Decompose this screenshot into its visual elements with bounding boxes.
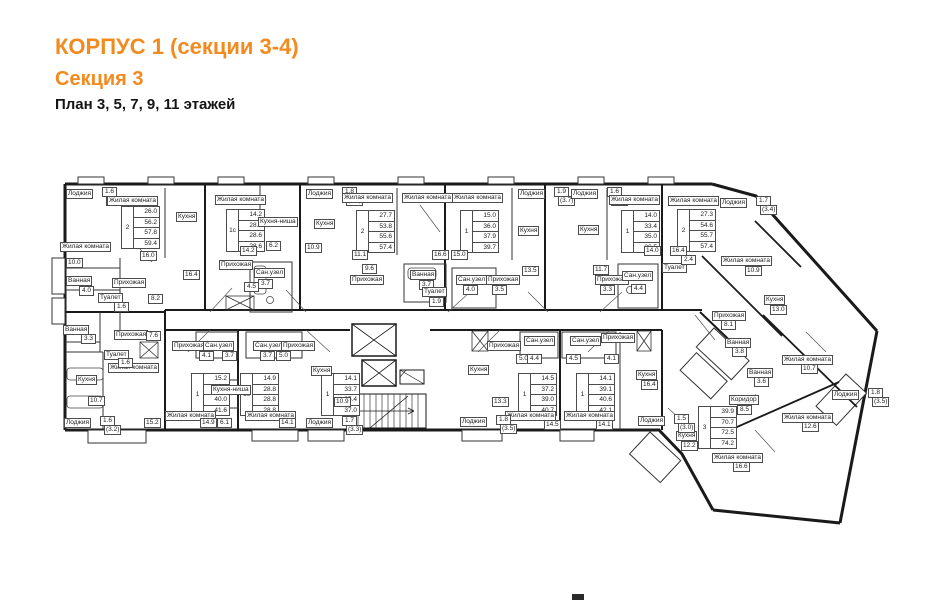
apartment-table: 339.970.772.574.2 [698, 406, 737, 449]
apartment-area-value: 39.9 [711, 407, 736, 418]
room-label: Лоджия [66, 189, 93, 199]
room-label: Кухня-ниша [211, 385, 251, 395]
room-area: 16.6 [733, 462, 750, 472]
room-label: Лоджия [306, 418, 333, 428]
room-area: (3.4) [760, 205, 777, 215]
title-block: КОРПУС 1 (секции 3-4) Секция 3 План 3, 5… [55, 30, 299, 115]
apartment-type: 3 [699, 407, 711, 448]
apartment-area-value: 55.7 [690, 231, 715, 242]
room-label: Прихожая [281, 341, 315, 351]
room-area: 14.1 [279, 418, 296, 428]
room-label: Кухня-ниша [258, 217, 298, 227]
apartment-area-value: 39.0 [531, 395, 556, 406]
room-area: 13.3 [492, 397, 509, 407]
apartment-area-value: 40.6 [589, 395, 614, 406]
room-label: Жилая комната [342, 193, 393, 203]
apartment-area-value: 36.0 [473, 222, 498, 233]
room-area: 13.5 [522, 266, 539, 276]
room-label: Прихожая [486, 275, 520, 285]
room-label: Туалет [422, 287, 447, 297]
apartment-area-value: 57.4 [369, 243, 394, 253]
room-label: Кухня [314, 219, 335, 229]
room-area: 5.0 [276, 351, 291, 361]
room-area: 1.9 [429, 297, 444, 307]
room-area: 14.1 [596, 420, 613, 430]
building-title: КОРПУС 1 (секции 3-4) [55, 30, 299, 64]
apartment-area-value: 59.4 [134, 239, 159, 249]
room-label: Лоджия [638, 416, 665, 426]
room-label: Кухня [578, 225, 599, 235]
room-area: 11.7 [593, 265, 609, 275]
apartment-type: 1 [622, 211, 634, 252]
room-area: 3.6 [754, 377, 769, 387]
apartment-area-value: 14.1 [589, 374, 614, 385]
apartment-area-value: 15.0 [473, 211, 498, 222]
room-area: 3.8 [732, 347, 747, 357]
room-area: 4.1 [199, 351, 214, 361]
apartment-area-value: 74.2 [711, 439, 736, 449]
apartment-area-value: 33.7 [334, 385, 359, 396]
apartment-table: 114.133.735.437.0 [321, 373, 360, 416]
apartment-area-value: 57.4 [690, 242, 715, 252]
apartment-area-value: 14.5 [531, 374, 556, 385]
room-label: Лоджия [832, 390, 859, 400]
room-label: Кухня [764, 295, 785, 305]
room-label: Жилая комната [668, 196, 719, 206]
room-area: 15.0 [451, 250, 468, 260]
room-area: 1.6 [118, 358, 133, 368]
room-area: 16.4 [183, 270, 200, 280]
room-label: Жилая комната [402, 193, 453, 203]
room-area: 14.5 [544, 420, 561, 430]
room-area: 3.3 [600, 285, 615, 295]
room-area: 3.7 [258, 279, 273, 289]
room-area: 3.7 [222, 351, 237, 361]
room-area: 13.0 [770, 305, 787, 315]
room-area: 4.5 [244, 282, 259, 292]
apartment-area-value: 28.8 [253, 395, 278, 406]
room-label: Кухня [468, 365, 489, 375]
room-label: Жилая комната [452, 193, 503, 203]
room-label: Сан.узел [254, 268, 285, 278]
room-label: Сан.узел [524, 336, 555, 346]
room-label: Прихожая [487, 341, 521, 351]
apartment-area-value: 27.7 [369, 211, 394, 222]
room-label: Сан.узел [570, 336, 601, 346]
room-label: Лоджия [518, 189, 545, 199]
section-title: Секция 3 [55, 64, 299, 94]
room-area: 10.9 [745, 266, 762, 276]
apartment-area-value: 37.9 [473, 232, 498, 243]
room-area: 12.2 [681, 441, 698, 451]
room-area: 14.0 [644, 246, 661, 256]
apartment-area-value: 14.1 [334, 374, 359, 385]
room-area: 10.0 [66, 258, 83, 268]
room-label: Жилая комната [60, 242, 111, 252]
room-label: Сан.узел [456, 275, 487, 285]
apartment-area-value: 26.0 [134, 207, 159, 218]
room-area: (3.5) [500, 424, 517, 434]
apartment-area-value: 55.6 [369, 232, 394, 243]
room-area: 16.0 [140, 251, 157, 261]
room-area: (3.3) [346, 425, 363, 435]
apartment-type: 1 [192, 374, 204, 415]
room-label: Лоджия [460, 417, 487, 427]
room-area: 7.6 [146, 331, 161, 341]
room-area: (3.2) [104, 425, 121, 435]
floor-plan-page: КОРПУС 1 (секции 3-4) Секция 3 План 3, 5… [0, 0, 941, 600]
room-area: 12.6 [802, 422, 819, 432]
room-label: Сан.узел [203, 341, 234, 351]
room-area: 4.0 [79, 286, 94, 296]
apartment-area-value: 14.9 [253, 374, 278, 385]
apartment-type: 1 [519, 374, 531, 415]
apartment-type: 1 [322, 374, 334, 415]
room-label: Жилая комната [721, 256, 772, 266]
apartment-table: 114.139.140.642.1 [576, 373, 615, 416]
apartment-type: 2 [678, 210, 690, 251]
apartment-area-value: 27.3 [690, 210, 715, 221]
room-label: Прихожая [172, 341, 206, 351]
room-label: Лоджия [720, 198, 747, 208]
room-label: Прихожая [219, 260, 253, 270]
apartment-area-value: 70.7 [711, 418, 736, 429]
apartment-area-value: 28.8 [253, 385, 278, 396]
room-area: 10.7 [88, 396, 105, 406]
apartment-area-value: 54.6 [690, 221, 715, 232]
apartment-area-value: 14.0 [634, 211, 659, 222]
room-label: Кухня [518, 226, 539, 236]
room-area: 6.1 [217, 418, 232, 428]
room-label: Кухня [636, 370, 657, 380]
room-label: Сан.узел [253, 341, 284, 351]
room-label: Прихожая [114, 330, 148, 340]
room-label: Ванная [410, 270, 436, 280]
room-area: 4.5 [566, 354, 581, 364]
apartment-area-value: 57.8 [134, 228, 159, 239]
room-label: Прихожая [350, 275, 384, 285]
room-area: 9.6 [362, 264, 377, 274]
room-label: Кухня [176, 212, 197, 222]
room-label: Жилая комната [215, 195, 266, 205]
room-label: Ванная [66, 276, 92, 286]
room-label: Жилая комната [609, 195, 660, 205]
room-label: Лоджия [306, 189, 333, 199]
room-area: 3.3 [81, 334, 96, 344]
room-label: Кухня [76, 375, 97, 385]
apartment-area-value: 53.8 [369, 222, 394, 233]
room-label: Жилая комната [108, 363, 159, 373]
apartment-area-value: 39.7 [473, 243, 498, 253]
room-area: 8.2 [148, 294, 163, 304]
apartment-type: 1 [577, 374, 589, 415]
apartment-area-value: 15.2 [204, 374, 229, 385]
room-area: 1.6 [114, 302, 129, 312]
room-label: Лоджия [64, 418, 91, 428]
apartment-type: 2 [357, 211, 369, 252]
room-label: Прихожая [601, 333, 635, 343]
room-label: Лоджия [571, 189, 598, 199]
room-label: Жилая комната [107, 196, 158, 206]
room-area: 10.7 [801, 364, 818, 374]
room-area: 11.1 [352, 250, 368, 260]
room-area: 14.2 [240, 246, 257, 256]
apartment-area-value: 35.0 [634, 232, 659, 243]
room-area: 16.4 [641, 380, 658, 390]
room-label: Прихожая [112, 278, 146, 288]
apartment-table: 226.056.257.859.4 [121, 206, 160, 249]
room-area: 10.9 [305, 243, 322, 253]
room-area: (3.0) [678, 423, 695, 433]
room-area: 16.6 [432, 250, 449, 260]
apartment-area-value: 37.2 [531, 385, 556, 396]
apartment-table: 227.753.855.657.4 [356, 210, 395, 253]
apartment-type: 1с [227, 210, 239, 251]
apartment-area-value: 56.2 [134, 218, 159, 229]
room-area: 4.4 [527, 354, 542, 364]
apartment-area-value: 28.6 [239, 231, 264, 242]
apartment-table: 114.537.239.040.7 [518, 373, 557, 416]
room-label: Коридор [729, 395, 759, 405]
room-area: 8.5 [737, 405, 752, 415]
room-label: Кухня [311, 366, 332, 376]
apartment-table: 115.036.037.939.7 [460, 210, 499, 253]
room-area: 14.9 [200, 418, 217, 428]
apartment-area-value: 72.5 [711, 428, 736, 439]
floors-subtitle: План 3, 5, 7, 9, 11 этажей [55, 94, 299, 115]
room-label: Сан.узел [622, 271, 653, 281]
room-area: 6.2 [266, 241, 281, 251]
apartment-type: 1 [461, 211, 473, 252]
room-area: 4.1 [604, 354, 619, 364]
apartment-area-value: 40.0 [204, 395, 229, 406]
apartment-area-value: 33.4 [634, 222, 659, 233]
room-area: 2.4 [681, 255, 696, 265]
room-area: 10.9 [334, 397, 351, 407]
room-area: (3.5) [872, 397, 889, 407]
room-area: 3.7 [260, 351, 275, 361]
room-area: 4.4 [631, 284, 646, 294]
room-area: 15.2 [144, 418, 161, 428]
apartment-type: 2 [122, 207, 134, 248]
room-area: 4.0 [463, 285, 478, 295]
room-area: 8.1 [721, 320, 736, 330]
room-area: 3.5 [492, 285, 507, 295]
apartment-area-value: 39.1 [589, 385, 614, 396]
